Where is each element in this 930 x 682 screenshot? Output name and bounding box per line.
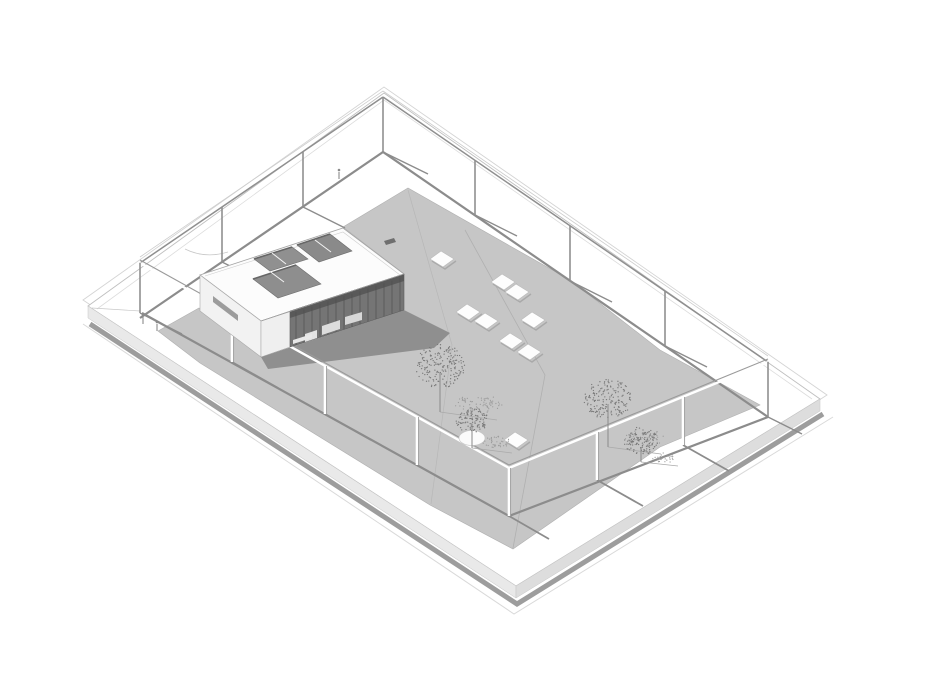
human-figure	[156, 321, 159, 324]
axonometric-site-drawing-canvas	[0, 0, 930, 682]
axonometric-drawing	[0, 0, 930, 682]
human-figure	[142, 314, 145, 317]
human-figure	[338, 169, 341, 172]
